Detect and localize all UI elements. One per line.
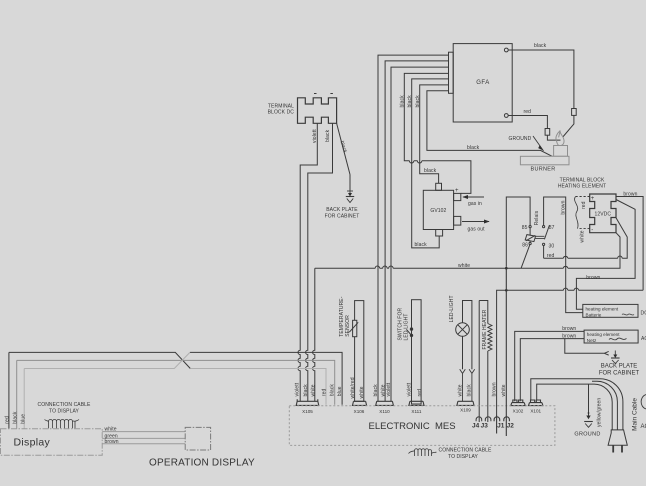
- svg-text:white/red: white/red: [350, 377, 356, 398]
- svg-text:heating element: heating element: [586, 306, 619, 311]
- svg-text:Batterie: Batterie: [586, 312, 602, 317]
- svg-text:blue: blue: [337, 386, 343, 396]
- svg-text:red: red: [581, 201, 587, 209]
- svg-text:violett: violett: [386, 382, 392, 396]
- svg-text:BLOCK DC: BLOCK DC: [268, 110, 295, 116]
- svg-text:X111: X111: [411, 409, 421, 414]
- svg-text:X102: X102: [513, 408, 524, 413]
- svg-text:black: black: [467, 145, 480, 151]
- svg-text:white: white: [501, 384, 507, 396]
- svg-text:86: 86: [522, 243, 528, 249]
- svg-text:85: 85: [522, 225, 528, 231]
- svg-text:FOR CABINET: FOR CABINET: [325, 214, 360, 220]
- svg-text:brown: brown: [586, 275, 600, 281]
- svg-text:white: white: [359, 386, 365, 398]
- svg-text:30: 30: [549, 243, 555, 249]
- svg-text:white: white: [458, 384, 464, 396]
- svg-text:12VDC: 12VDC: [594, 211, 611, 217]
- svg-text:red: red: [4, 416, 10, 424]
- svg-text:DC: DC: [641, 311, 646, 317]
- svg-text:BACK PLATE: BACK PLATE: [601, 364, 638, 370]
- svg-text:black: black: [330, 384, 336, 397]
- svg-text:ELECTRONIC MES: ELECTRONIC MES: [369, 421, 456, 432]
- svg-text:Relais: Relais: [534, 210, 540, 225]
- svg-text:TO DISPLAY: TO DISPLAY: [448, 454, 479, 460]
- svg-text:BACK PLATE: BACK PLATE: [326, 207, 358, 213]
- svg-text:SENSOR: SENSOR: [345, 315, 351, 337]
- svg-text:J2: J2: [507, 422, 515, 429]
- svg-text:black: black: [13, 411, 19, 424]
- svg-text:black: black: [373, 384, 379, 397]
- svg-text:red: red: [547, 253, 555, 259]
- svg-text:blue: blue: [20, 414, 26, 424]
- svg-text:X109: X109: [460, 408, 471, 413]
- svg-text:black: black: [466, 384, 472, 397]
- svg-text:TO DISPLAY: TO DISPLAY: [49, 409, 80, 415]
- svg-text:brown: brown: [491, 382, 497, 396]
- svg-text:X101: X101: [530, 408, 541, 413]
- svg-text:GFA: GFA: [476, 80, 490, 86]
- svg-text:FRAME HEATER: FRAME HEATER: [482, 309, 488, 349]
- svg-text:yellow/green: yellow/green: [597, 398, 603, 427]
- svg-text:red: red: [417, 389, 423, 397]
- svg-text:violett: violett: [295, 382, 301, 396]
- svg-text:X110: X110: [379, 409, 390, 414]
- svg-text:+: +: [455, 188, 459, 194]
- svg-text:87: 87: [549, 225, 555, 231]
- svg-text:OPERATION DISPLAY: OPERATION DISPLAY: [149, 458, 255, 469]
- svg-text:AC: AC: [641, 336, 646, 342]
- svg-text:black: black: [415, 242, 428, 248]
- svg-text:heating element: heating element: [587, 332, 620, 337]
- svg-text:X105: X105: [302, 409, 313, 414]
- svg-text:red: red: [524, 109, 532, 115]
- svg-text:gas in: gas in: [468, 201, 482, 207]
- svg-text:black: black: [325, 129, 331, 142]
- svg-text:Main Cable: Main Cable: [632, 398, 639, 431]
- svg-text:brown: brown: [562, 326, 576, 332]
- svg-text:gas out: gas out: [468, 227, 486, 233]
- svg-text:CONNECTION CABLE: CONNECTION CABLE: [38, 402, 92, 408]
- svg-text:black: black: [415, 95, 421, 108]
- svg-text:GROUND: GROUND: [574, 432, 600, 438]
- svg-text:GV102: GV102: [430, 208, 446, 214]
- svg-text:white: white: [105, 427, 117, 433]
- svg-text:white: white: [458, 263, 470, 269]
- svg-text:J1: J1: [497, 422, 505, 429]
- svg-text:LED-LIGHT: LED-LIGHT: [404, 313, 410, 340]
- svg-text:violett: violett: [406, 382, 412, 396]
- svg-text:black: black: [407, 95, 413, 108]
- svg-text:Display: Display: [14, 437, 51, 449]
- svg-text:CONNECTION CABLE: CONNECTION CABLE: [439, 448, 493, 454]
- svg-text:-: -: [591, 228, 593, 234]
- svg-text:black: black: [303, 384, 309, 397]
- svg-text:BURNER: BURNER: [530, 166, 555, 172]
- svg-text:J4: J4: [472, 422, 480, 429]
- svg-text:brown: brown: [562, 333, 576, 339]
- svg-text:GROUND: GROUND: [509, 136, 532, 142]
- svg-text:brown: brown: [561, 200, 567, 214]
- svg-text:Netz: Netz: [587, 338, 597, 343]
- svg-text:J3: J3: [481, 422, 489, 429]
- svg-text:black: black: [424, 168, 437, 174]
- svg-text:brown: brown: [623, 191, 637, 197]
- svg-text:white: white: [310, 384, 316, 396]
- svg-text:AC: AC: [641, 424, 646, 430]
- svg-text:brown: brown: [105, 439, 119, 445]
- svg-text:LED-LIGHT: LED-LIGHT: [449, 295, 455, 322]
- svg-text:HEATING ELEMENT: HEATING ELEMENT: [558, 184, 606, 190]
- svg-text:+: +: [591, 196, 595, 202]
- svg-text:red: red: [321, 389, 327, 397]
- svg-text:FOR CABINET: FOR CABINET: [599, 371, 640, 377]
- svg-text:white: white: [580, 230, 586, 242]
- svg-text:black: black: [534, 43, 547, 49]
- svg-text:violett: violett: [312, 129, 318, 143]
- svg-text:black: black: [400, 95, 406, 108]
- svg-text:X106: X106: [354, 409, 365, 414]
